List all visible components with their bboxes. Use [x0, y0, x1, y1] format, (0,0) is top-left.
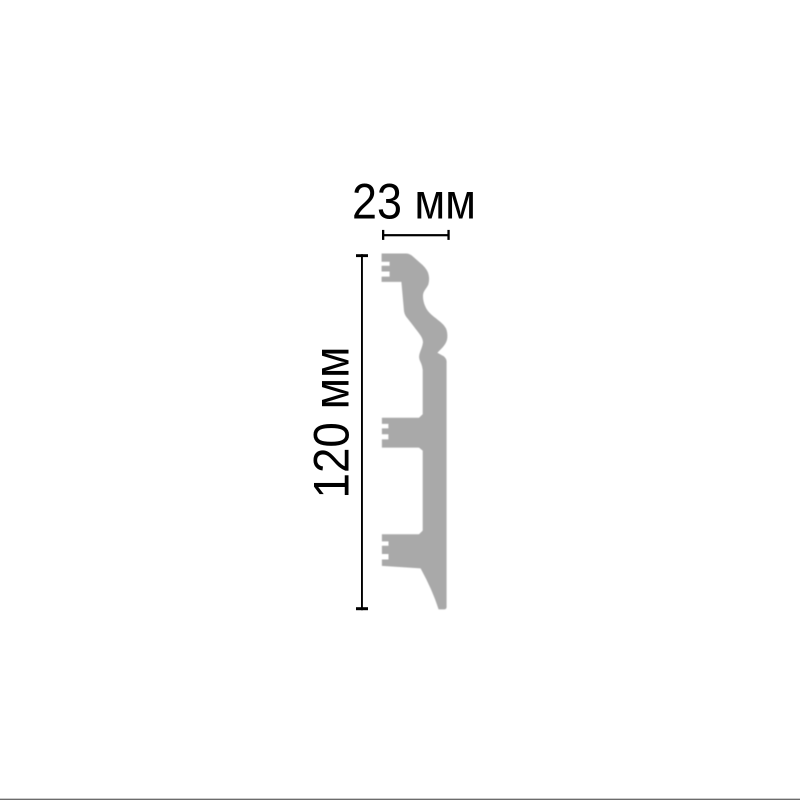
svg-text:23 мм: 23 мм	[352, 174, 476, 230]
svg-text:120 мм: 120 мм	[304, 347, 360, 499]
